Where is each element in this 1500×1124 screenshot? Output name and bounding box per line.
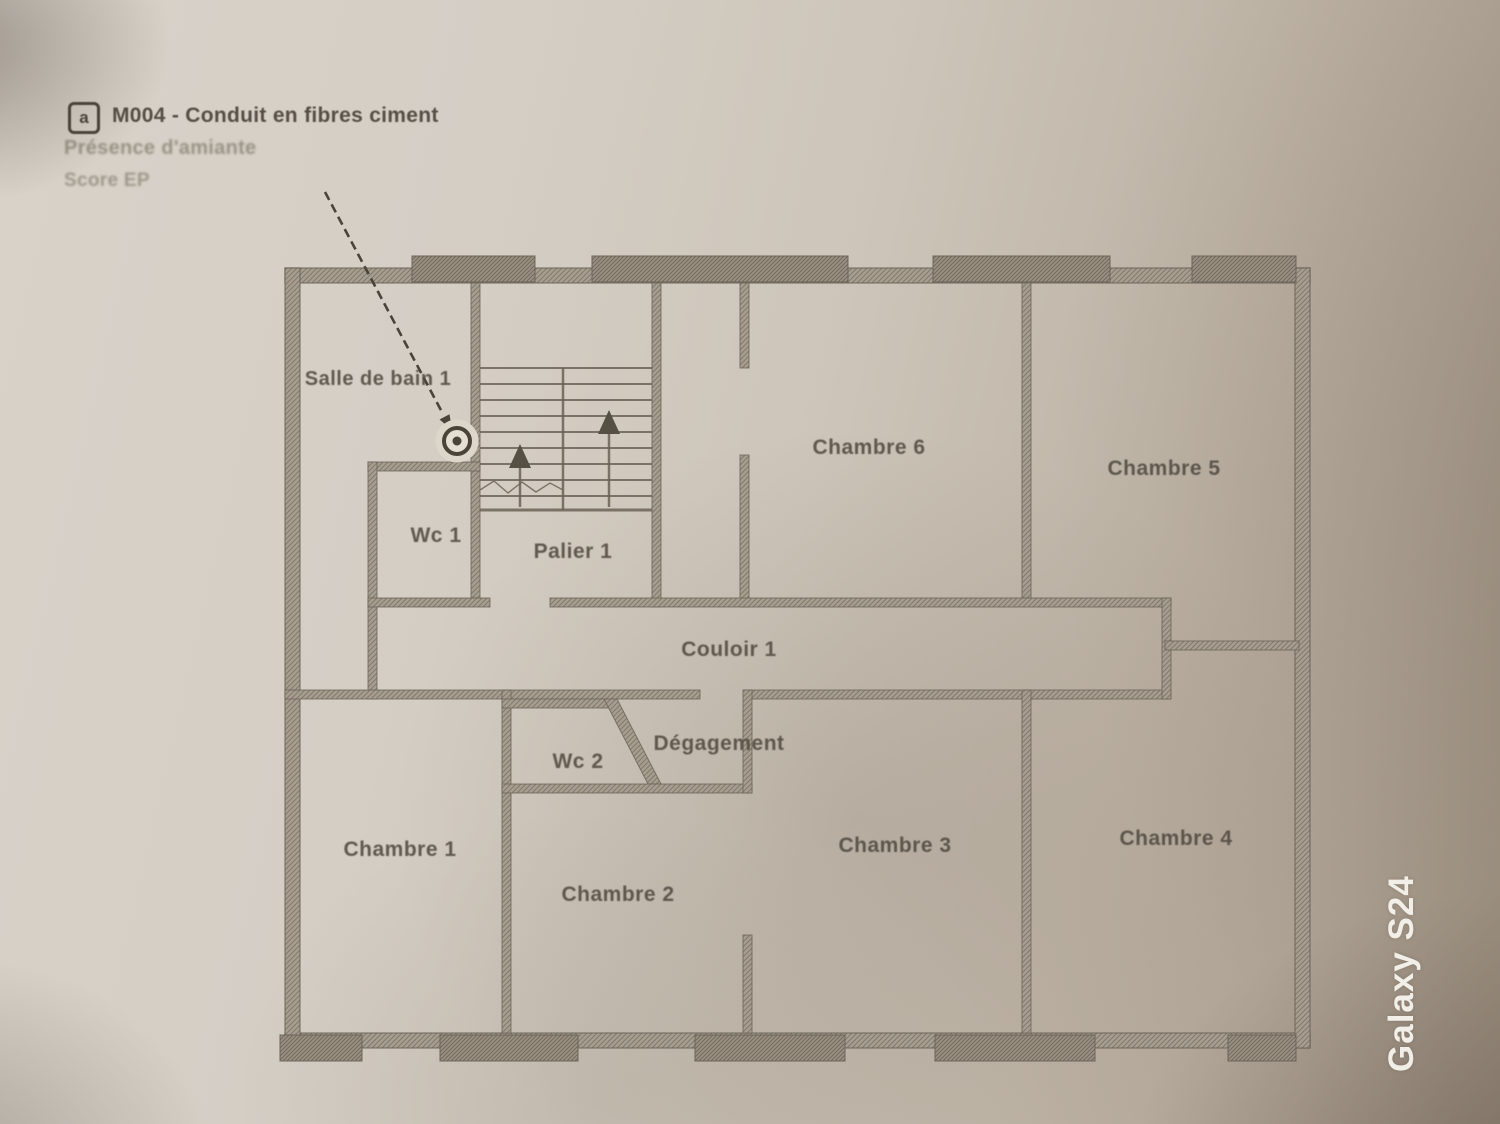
interior-walls bbox=[285, 283, 1299, 1033]
asbestos-conduit-marker bbox=[439, 423, 475, 459]
room-label-chambre-3: Chambre 3 bbox=[838, 834, 951, 857]
floor-plan-drawing: Salle de bain 1 Wc 1 Palier 1 Chambre 6 … bbox=[0, 0, 1500, 1124]
staircase bbox=[480, 368, 652, 510]
room-label-degagement: Dégagement bbox=[653, 732, 784, 755]
room-label-chambre-6: Chambre 6 bbox=[812, 436, 925, 459]
room-label-salle-de-bain-1: Salle de bain 1 bbox=[305, 368, 451, 390]
floor-plan-photo: a M004 - Conduit en fibres ciment Présen… bbox=[0, 0, 1500, 1124]
device-watermark: Galaxy S24 bbox=[1382, 872, 1422, 1072]
room-label-palier-1: Palier 1 bbox=[534, 540, 613, 563]
room-label-wc-1: Wc 1 bbox=[410, 524, 461, 547]
room-label-chambre-2: Chambre 2 bbox=[561, 883, 674, 906]
stair-direction-arrows bbox=[509, 410, 620, 468]
room-label-couloir-1: Couloir 1 bbox=[681, 638, 777, 661]
room-label-chambre-5: Chambre 5 bbox=[1107, 457, 1220, 480]
room-label-chambre-1: Chambre 1 bbox=[343, 838, 456, 861]
room-label-chambre-4: Chambre 4 bbox=[1119, 827, 1232, 850]
room-label-wc-2: Wc 2 bbox=[552, 750, 603, 773]
annotation-arrow bbox=[325, 192, 452, 430]
